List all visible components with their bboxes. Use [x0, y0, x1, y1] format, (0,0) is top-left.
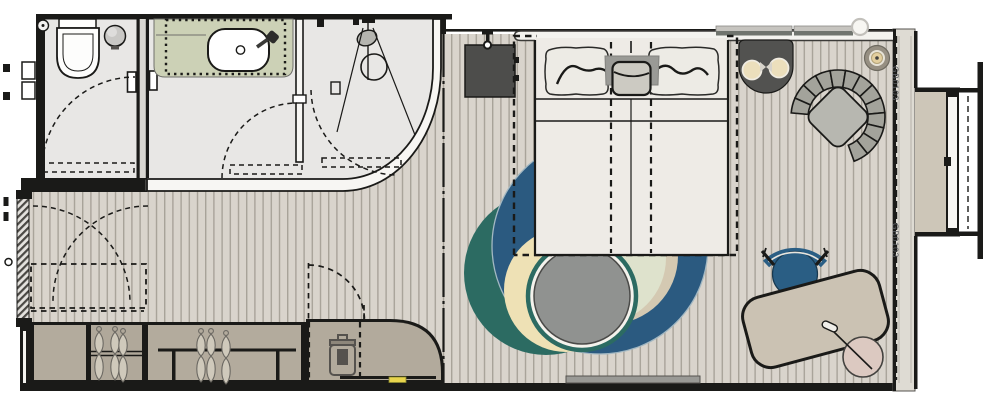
svg-text:GB0103: GB0103	[891, 66, 901, 101]
svg-text:GB0103: GB0103	[891, 223, 901, 258]
